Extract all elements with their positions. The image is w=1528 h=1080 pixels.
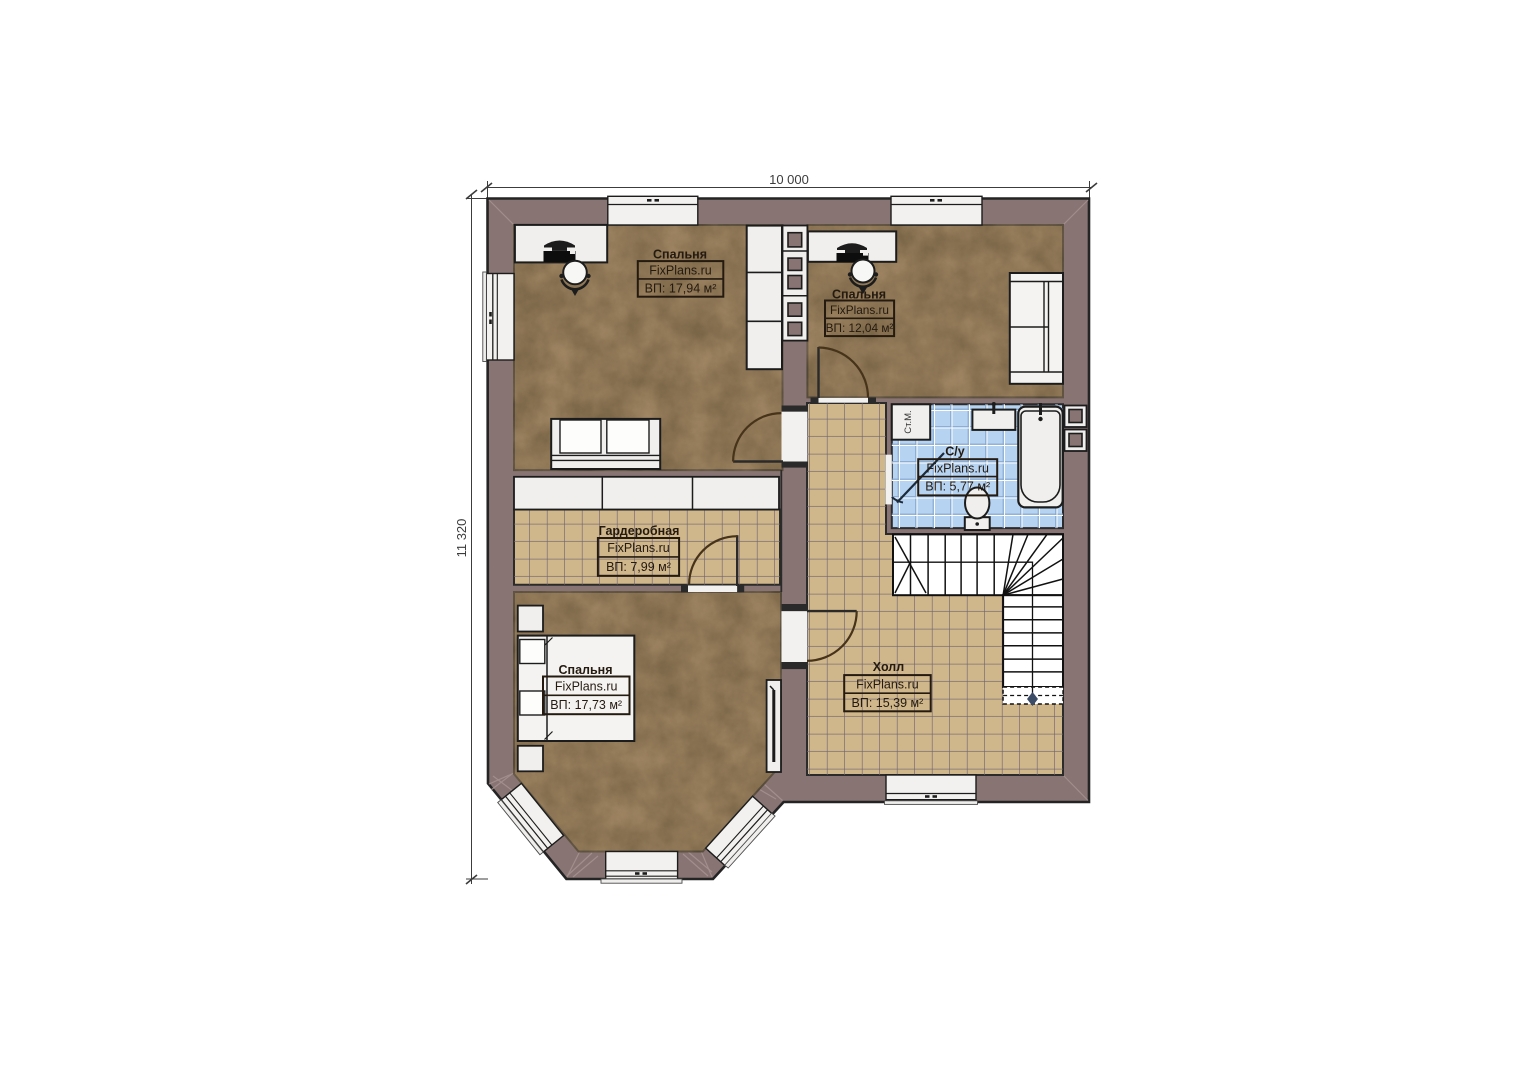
svg-text:FixPlans.ru: FixPlans.ru [830,303,889,317]
svg-text:10 000: 10 000 [769,172,809,187]
svg-text:FixPlans.ru: FixPlans.ru [555,679,618,693]
svg-text:Холл: Холл [873,660,904,674]
svg-text:FixPlans.ru: FixPlans.ru [607,541,670,555]
svg-text:11 320: 11 320 [454,519,469,558]
svg-text:Гардеробная: Гардеробная [599,524,680,538]
svg-text:Ст.М.: Ст.М. [903,410,914,433]
svg-text:С/у: С/у [945,445,965,459]
svg-text:FixPlans.ru: FixPlans.ru [856,678,919,692]
svg-text:FixPlans.ru: FixPlans.ru [649,264,712,278]
svg-text:ВП: 17,94 м²: ВП: 17,94 м² [645,282,717,296]
svg-text:Спальня: Спальня [559,663,613,677]
svg-text:ВП: 15,39 м²: ВП: 15,39 м² [852,696,924,710]
svg-text:ВП: 5,77 м²: ВП: 5,77 м² [925,480,990,494]
svg-text:FixPlans.ru: FixPlans.ru [926,461,989,475]
svg-text:ВП: 12,04 м²: ВП: 12,04 м² [826,321,894,335]
svg-text:ВП: 17,73 м²: ВП: 17,73 м² [550,698,622,712]
svg-text:ВП: 7,99 м²: ВП: 7,99 м² [606,560,671,574]
svg-text:Спальня: Спальня [832,288,886,302]
svg-text:Спальня: Спальня [653,248,707,262]
